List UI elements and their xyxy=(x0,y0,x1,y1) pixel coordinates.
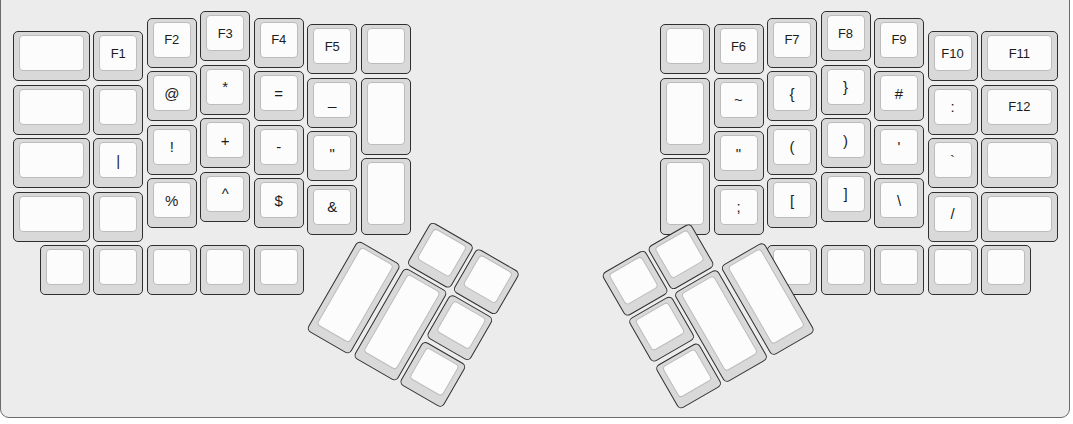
key-blank[interactable] xyxy=(361,24,411,74)
key-label: } xyxy=(843,79,848,94)
keycap-top-surface xyxy=(46,249,84,285)
key-label: F2 xyxy=(164,33,179,46)
keycap-top-surface: / xyxy=(934,196,972,232)
keycap-top-surface: ` xyxy=(934,142,972,178)
key-label: F1 xyxy=(111,47,126,60)
key-blank[interactable] xyxy=(93,245,143,295)
key-percent[interactable]: % xyxy=(147,178,197,228)
key-label: ' xyxy=(898,139,901,154)
key-label: & xyxy=(327,199,337,214)
keycap-top-surface: * xyxy=(206,69,244,105)
key-label: ( xyxy=(790,139,795,154)
keycap-top-surface xyxy=(827,249,865,285)
key-label: \ xyxy=(897,193,901,208)
key-open-brace[interactable]: { xyxy=(767,71,817,121)
key-label: % xyxy=(165,193,178,208)
keycap-top-surface xyxy=(99,249,137,285)
keycap-top-surface xyxy=(99,196,137,232)
key-f9[interactable]: F9 xyxy=(874,18,924,68)
key-label: - xyxy=(276,139,281,154)
key-at[interactable]: @ xyxy=(147,71,197,121)
key-blank[interactable] xyxy=(361,158,411,235)
key-backslash[interactable]: \ xyxy=(874,178,924,228)
key-blank[interactable] xyxy=(13,31,90,81)
key-label: * xyxy=(222,79,228,94)
key-label: @ xyxy=(164,86,179,101)
key-blank[interactable] xyxy=(93,85,143,135)
keycap-top-surface xyxy=(367,82,405,145)
key-semicolon[interactable]: ; xyxy=(714,185,764,235)
keycap-top-surface: " xyxy=(313,135,351,171)
keycap-top-surface xyxy=(19,196,84,232)
key-label: ] xyxy=(843,186,847,201)
keycap-top-surface: " xyxy=(720,135,758,171)
key-label: F11 xyxy=(1009,47,1030,60)
keycap-top-surface: \ xyxy=(880,182,918,218)
key-open-paren[interactable]: ( xyxy=(767,125,817,175)
keycap-top-surface: % xyxy=(153,182,191,218)
key-blank[interactable] xyxy=(13,138,90,188)
keyboard-layout-stage: F1|F2@!%F3*+^F4=-$F5_"&F6~";F7{([F8})]F9… xyxy=(0,0,1073,424)
key-hash[interactable]: # xyxy=(874,71,924,121)
key-double-quote[interactable]: " xyxy=(714,131,764,181)
keycap-top-surface xyxy=(666,82,704,145)
keycap-top-surface: @ xyxy=(153,75,191,111)
key-blank[interactable] xyxy=(93,192,143,242)
key-blank[interactable] xyxy=(254,245,304,295)
key-f4[interactable]: F4 xyxy=(254,18,304,68)
key-f3[interactable]: F3 xyxy=(200,11,250,61)
key-label: F12 xyxy=(1008,100,1030,113)
keycap-top-surface: ^ xyxy=(206,176,244,212)
key-label: " xyxy=(736,146,741,161)
key-blank[interactable] xyxy=(981,138,1058,188)
keycap-top-surface: { xyxy=(773,75,811,111)
key-f11[interactable]: F11 xyxy=(981,31,1058,81)
key-label: F6 xyxy=(731,40,746,53)
key-dollar[interactable]: $ xyxy=(254,178,304,228)
key-blank[interactable] xyxy=(200,245,250,295)
keycap-top-surface: - xyxy=(260,129,298,165)
key-label: F9 xyxy=(891,33,906,46)
keycap-top-surface: [ xyxy=(773,182,811,218)
keycap-top-surface: ' xyxy=(880,129,918,165)
keycap-top-surface: F10 xyxy=(934,35,972,71)
key-label: ` xyxy=(950,153,955,168)
keycap-top-surface: + xyxy=(206,122,244,158)
key-f6[interactable]: F6 xyxy=(714,24,764,74)
keycap-top-surface: F9 xyxy=(880,22,918,58)
keycap-top-surface: : xyxy=(934,89,972,125)
key-equals[interactable]: = xyxy=(254,71,304,121)
key-blank[interactable] xyxy=(660,158,710,235)
keycap-top-surface xyxy=(987,142,1052,178)
keycap-top-surface: F1 xyxy=(99,35,137,71)
keycap-top-surface: ) xyxy=(827,122,865,158)
keycap-top-surface xyxy=(99,89,137,125)
key-double-quote[interactable]: " xyxy=(307,131,357,181)
keycap-top-surface xyxy=(19,142,84,178)
key-minus[interactable]: - xyxy=(254,125,304,175)
key-blank[interactable] xyxy=(13,192,90,242)
keycap-top-surface xyxy=(19,89,84,125)
keycap-top-surface: ; xyxy=(720,189,758,225)
key-blank[interactable] xyxy=(660,24,710,74)
keycap-top-surface: F5 xyxy=(313,28,351,64)
key-blank[interactable] xyxy=(981,245,1031,295)
key-apostrophe[interactable]: ' xyxy=(874,125,924,175)
key-blank[interactable] xyxy=(874,245,924,295)
key-label: F5 xyxy=(325,40,340,53)
key-label: ! xyxy=(170,139,174,154)
key-blank[interactable] xyxy=(928,245,978,295)
key-close-bracket[interactable]: ] xyxy=(821,172,871,222)
key-close-paren[interactable]: ) xyxy=(821,118,871,168)
key-label: F10 xyxy=(941,47,963,60)
keycap-top-surface: F2 xyxy=(153,22,191,58)
key-ampersand[interactable]: & xyxy=(307,185,357,235)
key-close-brace[interactable]: } xyxy=(821,65,871,115)
keycap-top-surface: # xyxy=(880,75,918,111)
key-label: " xyxy=(330,146,335,161)
keycap-top-surface: ! xyxy=(153,129,191,165)
key-colon[interactable]: : xyxy=(928,85,978,135)
key-label: F3 xyxy=(218,27,233,40)
keycap-top-surface xyxy=(367,28,405,64)
key-f10[interactable]: F10 xyxy=(928,31,978,81)
keycap-top-surface xyxy=(260,249,298,285)
keycap-top-surface: = xyxy=(260,75,298,111)
key-blank[interactable] xyxy=(147,245,197,295)
keycap-top-surface: ~ xyxy=(720,82,758,118)
keycap-top-surface xyxy=(987,249,1025,285)
key-f12[interactable]: F12 xyxy=(981,85,1058,135)
keycap-top-surface: F4 xyxy=(260,22,298,58)
key-label: : xyxy=(950,99,954,114)
keycap-top-surface: F6 xyxy=(720,28,758,64)
keycap-top-surface: & xyxy=(313,189,351,225)
key-plus[interactable]: + xyxy=(200,118,250,168)
key-label: { xyxy=(789,86,794,101)
key-label: F7 xyxy=(784,33,799,46)
key-label: [ xyxy=(790,193,794,208)
key-blank[interactable] xyxy=(13,85,90,135)
keycap-top-surface xyxy=(934,249,972,285)
keycap-top-surface: } xyxy=(827,69,865,105)
key-label: _ xyxy=(328,92,336,107)
keycap-top-surface: ( xyxy=(773,129,811,165)
keycap-top-surface xyxy=(19,35,84,71)
keycap-top-surface: | xyxy=(99,142,137,178)
key-pipe[interactable]: | xyxy=(93,138,143,188)
key-slash[interactable]: / xyxy=(928,192,978,242)
keycap-top-surface: F8 xyxy=(827,15,865,51)
key-caret[interactable]: ^ xyxy=(200,172,250,222)
keycap-top-surface xyxy=(880,249,918,285)
key-f7[interactable]: F7 xyxy=(767,18,817,68)
key-open-bracket[interactable]: [ xyxy=(767,178,817,228)
key-f2[interactable]: F2 xyxy=(147,18,197,68)
key-label: ) xyxy=(843,133,848,148)
keycap-top-surface: ] xyxy=(827,176,865,212)
keycap-top-surface xyxy=(987,196,1052,232)
key-label: F4 xyxy=(271,33,286,46)
keycap-top-surface: _ xyxy=(313,82,351,118)
key-label: ^ xyxy=(222,186,229,201)
keycap-top-surface xyxy=(153,249,191,285)
keycap-top-surface: F12 xyxy=(987,89,1052,125)
key-label: / xyxy=(950,206,954,221)
key-label: $ xyxy=(275,193,283,208)
key-f8[interactable]: F8 xyxy=(821,11,871,61)
key-f5[interactable]: F5 xyxy=(307,24,357,74)
key-blank[interactable] xyxy=(981,192,1058,242)
key-label: ~ xyxy=(734,92,743,107)
key-exclamation[interactable]: ! xyxy=(147,125,197,175)
key-f1[interactable]: F1 xyxy=(93,31,143,81)
keycap-top-surface: F3 xyxy=(206,15,244,51)
key-label: F8 xyxy=(838,27,853,40)
keycap-top-surface xyxy=(666,162,704,225)
key-blank[interactable] xyxy=(40,245,90,295)
key-backtick[interactable]: ` xyxy=(928,138,978,188)
key-asterisk[interactable]: * xyxy=(200,65,250,115)
keycap-top-surface xyxy=(666,28,704,64)
keycap-top-surface: F7 xyxy=(773,22,811,58)
keycap-top-surface: F11 xyxy=(987,35,1052,71)
key-blank[interactable] xyxy=(660,78,710,155)
key-label: ; xyxy=(736,199,740,214)
key-underscore[interactable]: _ xyxy=(307,78,357,128)
key-label: = xyxy=(274,86,283,101)
keycap-top-surface: $ xyxy=(260,182,298,218)
keycap-top-surface xyxy=(367,162,405,225)
key-tilde[interactable]: ~ xyxy=(714,78,764,128)
key-blank[interactable] xyxy=(821,245,871,295)
key-label: | xyxy=(116,153,120,168)
key-label: + xyxy=(221,133,230,148)
key-blank[interactable] xyxy=(361,78,411,155)
key-label: # xyxy=(895,86,903,101)
keycap-top-surface xyxy=(206,249,244,285)
